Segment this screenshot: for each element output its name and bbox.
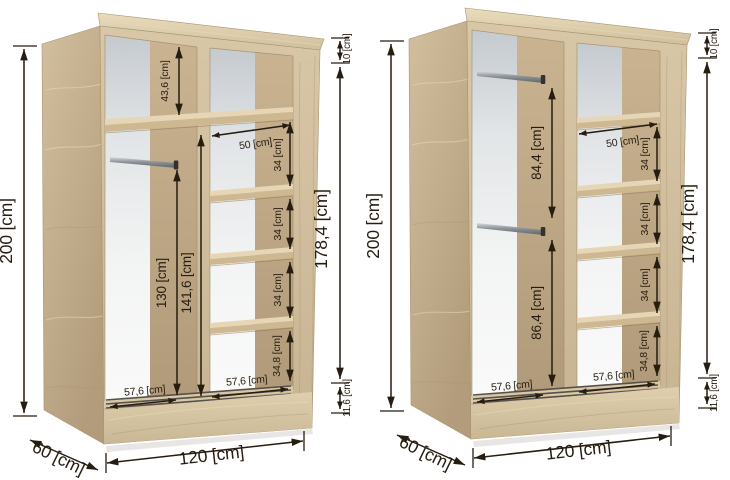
- dim-label-depth: 60 [cm]: [396, 431, 455, 474]
- right-column-back-panel: [577, 43, 622, 392]
- dim-depth: 60 [cm]: [29, 436, 98, 479]
- dim-label-total-width: 120 [cm]: [178, 441, 245, 468]
- dim-label-shelf-section: 34,8 [cm]: [271, 335, 283, 377]
- dim-label-base-height: 11,6 [cm]: [709, 374, 720, 412]
- left-column-back-panel: [105, 35, 150, 406]
- dim-total-height: 200 [cm]: [363, 41, 404, 411]
- dim-label-upper-section: 43,6 [cm]: [159, 60, 171, 102]
- dim-label-shelf-section: 34 [cm]: [639, 268, 651, 301]
- dim-total-height: 200 [cm]: [0, 46, 37, 416]
- wardrobe-left: 200 [cm] 10 [cm] 178,4 [cm] 11,6 [cm] 43…: [0, 13, 353, 479]
- dim-label-shelf-section: 34 [cm]: [639, 202, 651, 235]
- right-column-back-panel: [210, 48, 255, 397]
- dim-label-shelf-section: 34 [cm]: [272, 138, 284, 171]
- dim-label-base-height: 11,6 [cm]: [342, 379, 353, 417]
- dim-label-shelf-section: 34 [cm]: [639, 137, 651, 170]
- dim-label-upper-rail-section: 84,4 [cm]: [529, 126, 544, 180]
- dim-label-total-height: 200 [cm]: [363, 193, 383, 259]
- dim-label-shelf-section: 34 [cm]: [272, 207, 284, 240]
- left-column-divider-face: [150, 41, 197, 402]
- dim-depth: 60 [cm]: [396, 431, 465, 474]
- dim-label-total-height: 200 [cm]: [0, 198, 16, 264]
- dim-label-rail-to-floor: 130 [cm]: [154, 258, 169, 308]
- dim-label-interior-height: 178,4 [cm]: [311, 189, 331, 269]
- left-column-divider-face: [517, 36, 564, 397]
- dim-label-top-gap: 10 [cm]: [709, 28, 720, 59]
- dim-label-total-width: 120 [cm]: [545, 436, 612, 463]
- dim-label-lower-rail-section: 86,4 [cm]: [529, 286, 544, 340]
- dim-label-shelf-section: 34,8 [cm]: [638, 330, 650, 372]
- wardrobe-right: 200 [cm] 10 [cm] 178,4 [cm] 11,6 [cm] 84…: [363, 8, 720, 474]
- dim-label-interior-height: 178,4 [cm]: [678, 184, 698, 264]
- wardrobe-dimension-diagram: 200 [cm] 10 [cm] 178,4 [cm] 11,6 [cm] 43…: [0, 0, 730, 480]
- dim-label-depth: 60 [cm]: [29, 436, 88, 479]
- dim-label-left-column-height: 141,6 [cm]: [179, 252, 194, 313]
- dim-label-shelf-section: 34 [cm]: [272, 273, 284, 306]
- left-column-back-panel: [472, 30, 517, 401]
- dim-label-top-gap: 10 [cm]: [342, 33, 353, 64]
